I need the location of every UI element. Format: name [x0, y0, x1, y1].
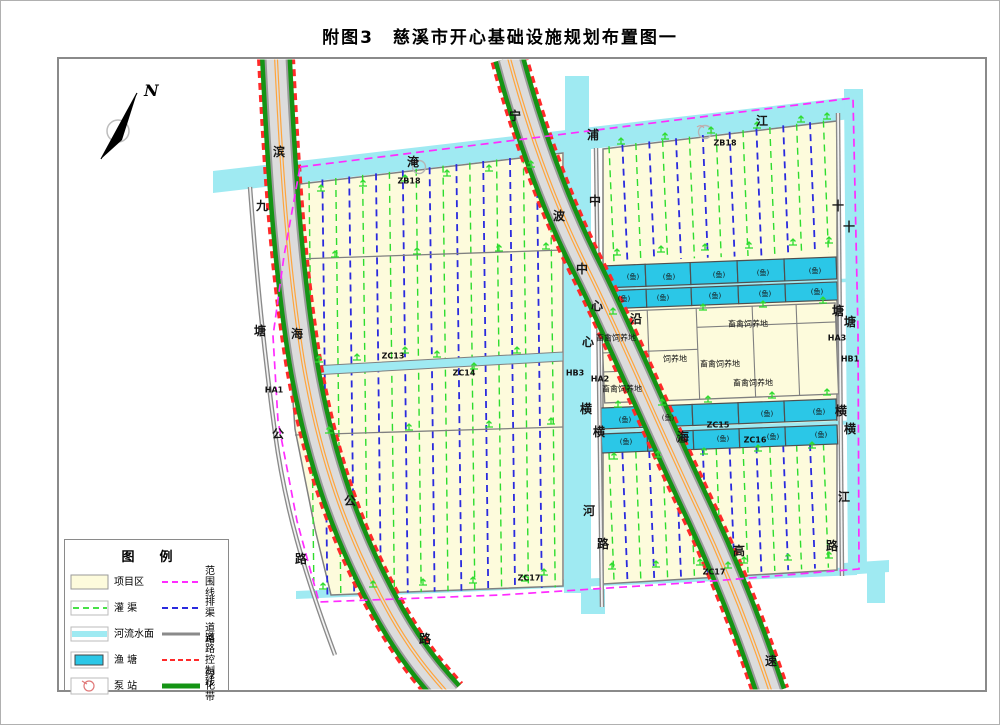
map-label: 河	[582, 503, 595, 518]
legend-swatch-fish-pond-icon	[70, 651, 110, 669]
map-label: 公	[344, 494, 356, 508]
legend-label-pump-station: 泵 站	[114, 681, 159, 692]
legend-swatch-boundary-line-icon	[161, 573, 201, 591]
map-label: (鱼)	[811, 287, 824, 296]
map-label: 路	[295, 551, 308, 566]
map-label: 横	[593, 424, 606, 439]
map-label: ZC17	[518, 574, 541, 583]
map-label: 江	[838, 489, 850, 504]
map-label: ZC16	[744, 436, 767, 445]
fish-pond-cell	[784, 399, 837, 422]
map-label: 速	[765, 653, 777, 668]
map-label: ZC14	[453, 369, 476, 378]
map-label: (鱼)	[709, 291, 722, 300]
map-label: 畜禽饲养地	[728, 319, 768, 329]
legend-swatch-drainage-canal-icon	[161, 599, 201, 617]
map-label: HB1	[841, 355, 860, 364]
north-arrow: N	[101, 81, 160, 159]
map-label: HB3	[566, 369, 584, 378]
map-label: 畜禽饲养地	[602, 384, 642, 394]
legend-grid: 项目区 范围线 灌 渠 排 渠 河流水面 道 路	[70, 569, 224, 699]
map-label: 中	[576, 261, 588, 276]
map-label: (鱼)	[713, 270, 726, 279]
map-content: 滨海公路九塘公路宁波沿海高速淹浦江中心横河中心横路十塘横路十塘横江ZB18ZB1…	[213, 58, 889, 695]
legend-label-boundary-line: 范围线	[205, 566, 224, 599]
legend-label-drainage-canal: 排 渠	[205, 597, 224, 619]
map-label: (鱼)	[815, 430, 828, 439]
legend-label-irrigation-canal: 灌 渠	[114, 603, 159, 614]
map-label: (鱼)	[676, 435, 689, 444]
map-label: ZC17	[703, 568, 726, 577]
map-label: 波	[553, 208, 566, 223]
map-label: ZB18	[397, 177, 420, 186]
map-label: (鱼)	[627, 272, 640, 281]
legend-swatch-green-belt-icon	[161, 677, 201, 695]
map-label: (鱼)	[759, 289, 772, 298]
map-label: 横	[835, 403, 848, 418]
map-label: 江	[756, 113, 768, 128]
legend-swatch-river-surface-icon	[70, 625, 110, 643]
map-label: 横	[844, 421, 857, 436]
river-corner-2	[867, 572, 885, 603]
outlet-mark-icon	[319, 583, 327, 589]
map-label: HA1	[265, 386, 284, 395]
map-label: 塘	[832, 303, 844, 318]
map-label: 畜禽饲养地	[733, 378, 773, 388]
map-label: 海	[291, 326, 303, 341]
map-label: 心	[591, 299, 603, 313]
map-label: (鱼)	[813, 407, 826, 416]
map-label: 路	[826, 538, 839, 553]
map-label: 塘	[844, 314, 856, 329]
fish-pond-band	[598, 256, 859, 309]
legend: 图 例 项目区 范围线 灌 渠 排 渠 河流水面	[64, 539, 229, 691]
map-label: (鱼)	[761, 409, 774, 418]
legend-swatch-project-area-icon	[70, 573, 110, 591]
map-label: 横	[580, 401, 593, 416]
map-label: (鱼)	[757, 268, 770, 277]
map-label: (鱼)	[809, 266, 822, 275]
legend-label-river-surface: 河流水面	[114, 629, 159, 640]
map-label: 中	[589, 193, 601, 208]
map-label: (鱼)	[620, 437, 633, 446]
map-label: 宁	[509, 108, 521, 123]
map-label: 高	[733, 543, 745, 558]
map-label: 饲养地	[663, 354, 687, 364]
map-label: (鱼)	[767, 432, 780, 441]
map-label: (鱼)	[663, 272, 676, 281]
north-arrow-shaft	[101, 93, 137, 159]
legend-swatch-road-control-line-icon	[161, 651, 201, 669]
map-label: (鱼)	[619, 415, 632, 424]
map-label: 畜禽饲养地	[700, 359, 740, 369]
map-label: 公	[272, 427, 284, 441]
legend-label-fish-pond: 渔 塘	[114, 655, 159, 666]
map-label: 心	[582, 335, 594, 349]
map-label: ZC15	[707, 421, 730, 430]
map-label: 畜禽饲养地	[596, 333, 636, 343]
map-label: 浦	[587, 127, 599, 142]
legend-swatch-road-icon	[161, 625, 201, 643]
map-label: 十	[843, 219, 855, 234]
map-label: 路	[419, 631, 432, 646]
map-label: 十	[832, 198, 844, 213]
map-label: (鱼)	[662, 413, 675, 422]
river-stub-top	[565, 76, 589, 154]
map-label: 淹	[407, 154, 420, 169]
legend-swatch-pump-station-icon	[70, 677, 110, 695]
map-label: HA2	[591, 375, 609, 384]
map-label: 沿	[629, 312, 642, 326]
legend-label-green-belt: 绿化带	[205, 670, 224, 703]
map-label: (鱼)	[657, 293, 670, 302]
map-label: HA3	[828, 334, 846, 343]
map-label: (鱼)	[717, 434, 730, 443]
legend-label-project-area: 项目区	[114, 577, 159, 588]
legend-swatch-irrigation-canal-icon	[70, 599, 110, 617]
map-label: ZB18	[713, 139, 736, 148]
map-label: 路	[597, 536, 610, 551]
map-label: 塘	[254, 323, 266, 338]
map-label: 九	[255, 198, 268, 213]
map-label: ZC13	[382, 352, 405, 361]
planning-figure-page: 附图3 慈溪市开心基础设施规划布置图一 滨海公路九塘公路宁波沿海高速淹浦江中心横…	[0, 0, 1000, 725]
legend-title: 图 例	[76, 546, 224, 565]
map-label: (鱼)	[618, 294, 631, 303]
north-label: N	[143, 81, 160, 100]
map-label: 滨	[273, 144, 285, 159]
